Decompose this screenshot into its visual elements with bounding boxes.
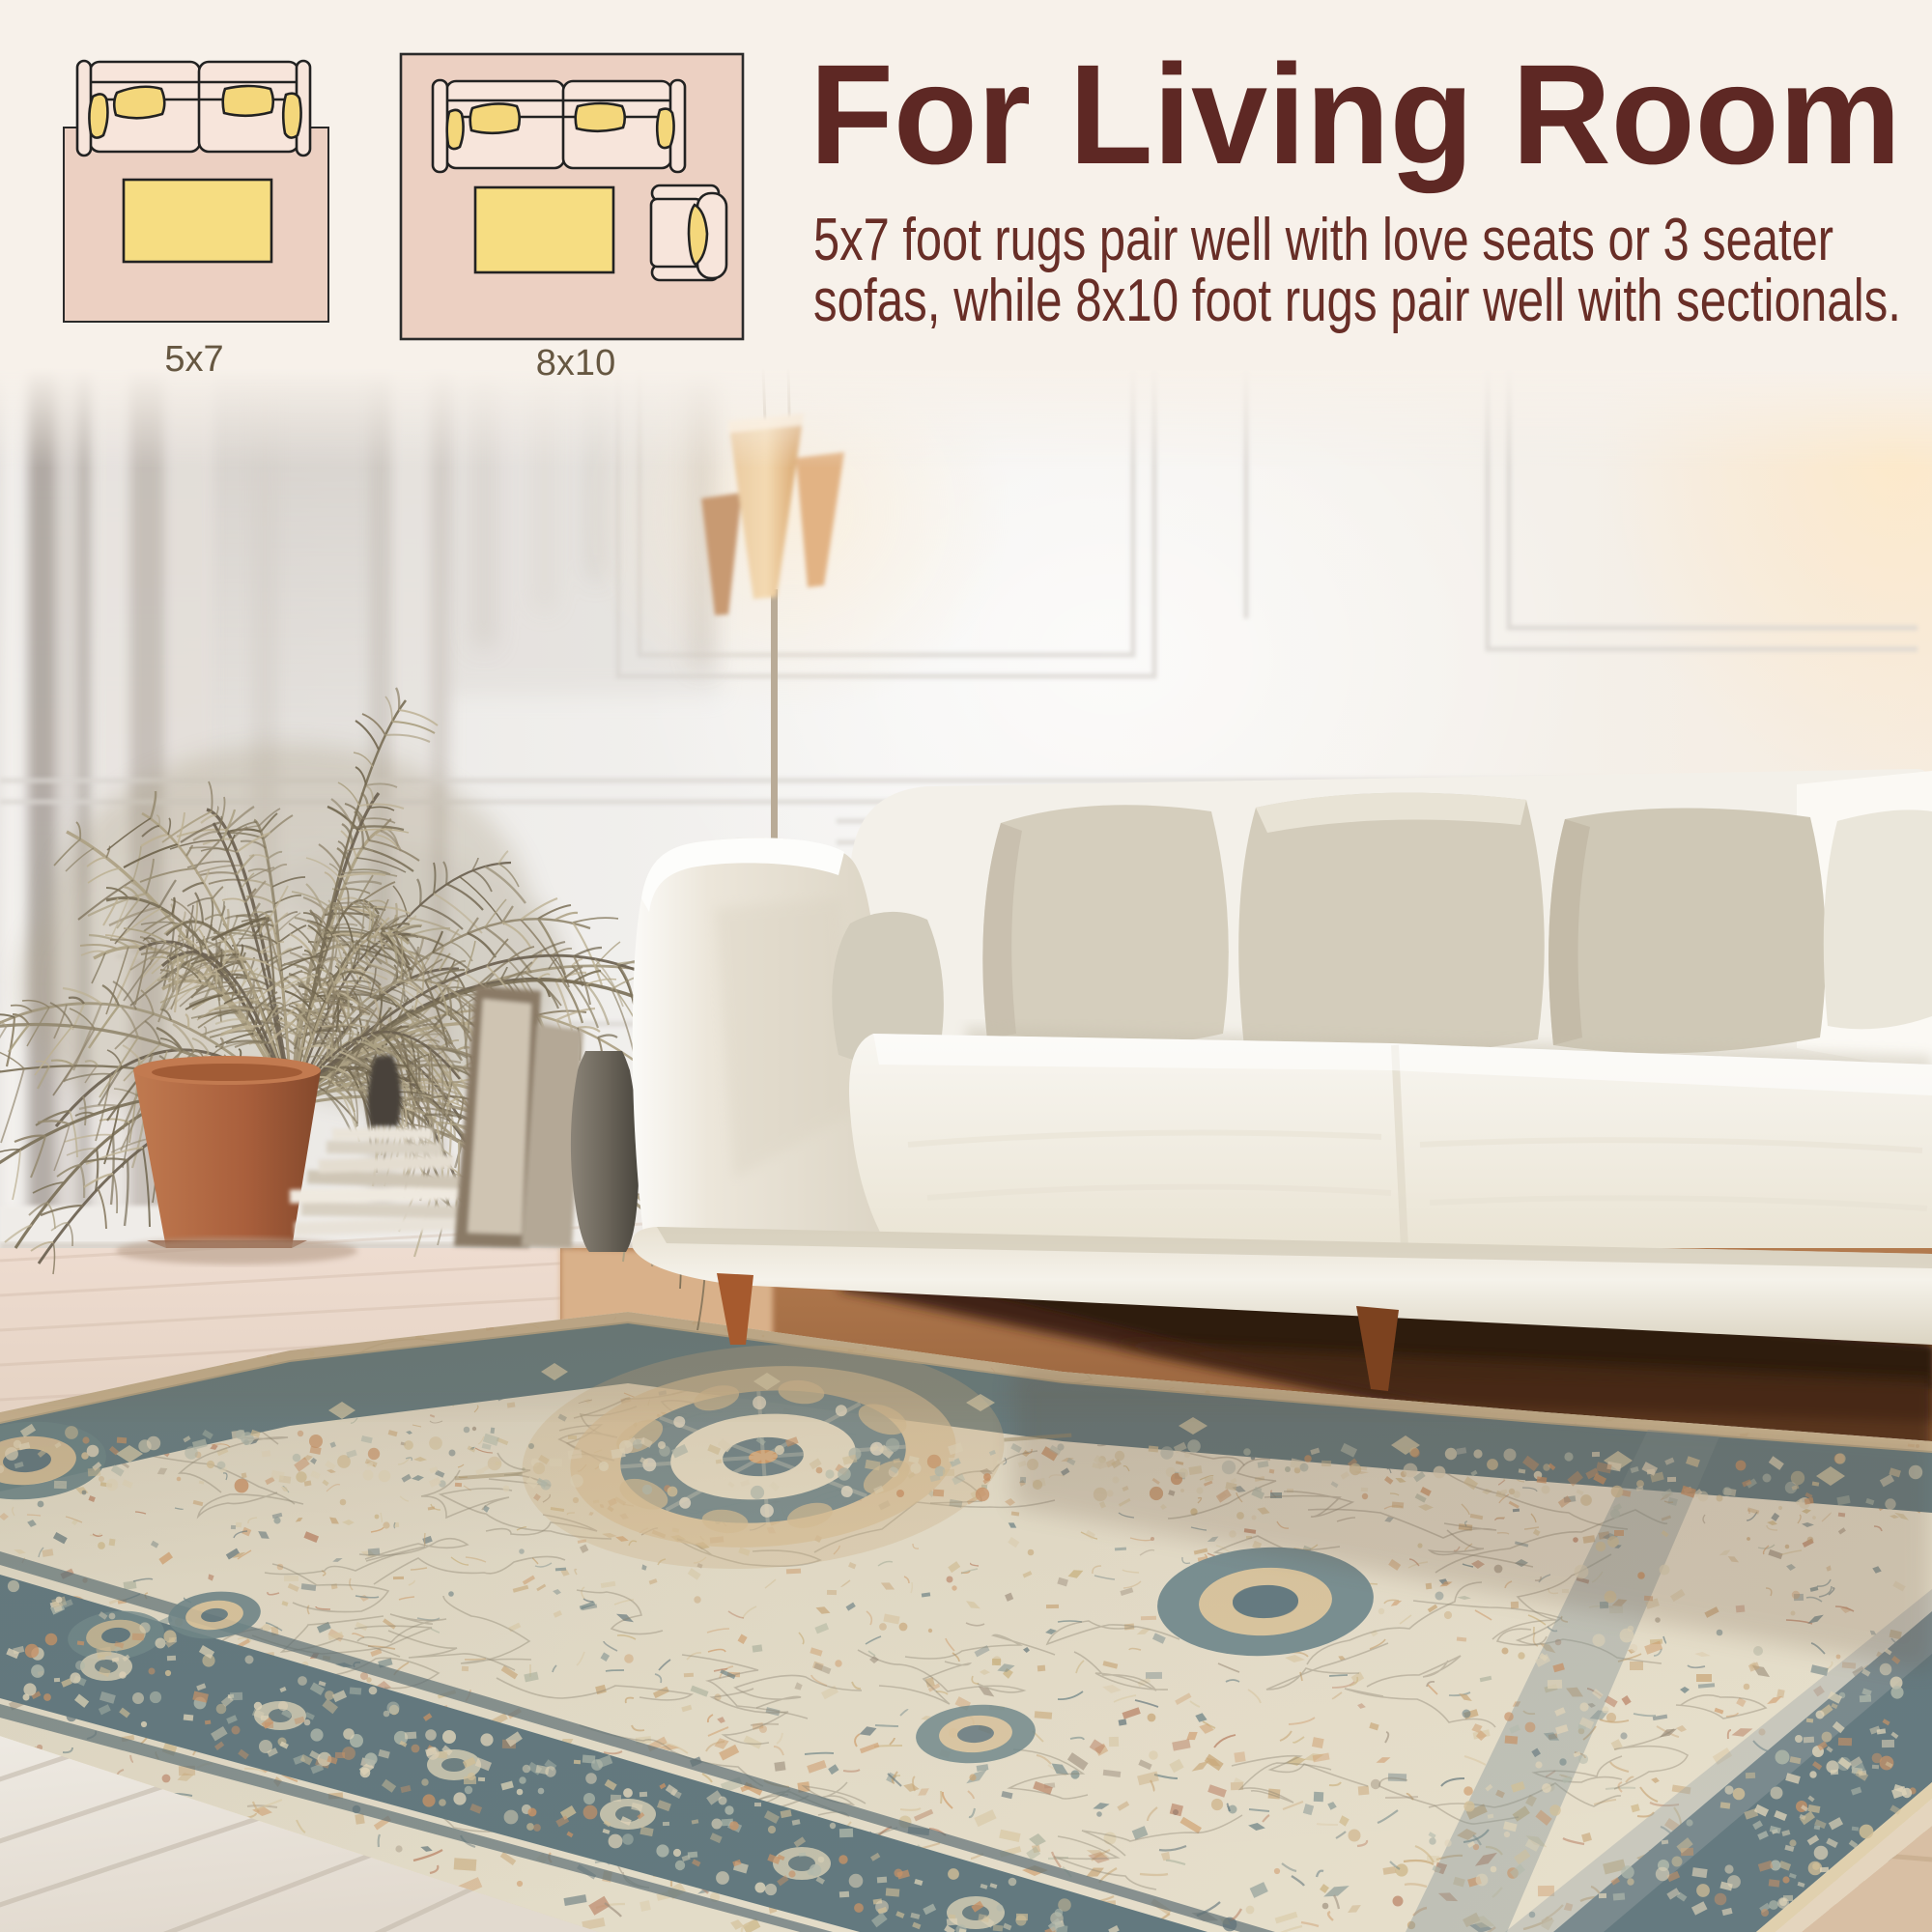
- svg-text:8x10: 8x10: [536, 343, 615, 384]
- svg-text:5x7 foot rugs pair well with l: 5x7 foot rugs pair well with love seats …: [813, 207, 1833, 273]
- svg-text:sofas, while 8x10 foot rugs pa: sofas, while 8x10 foot rugs pair well wi…: [813, 268, 1901, 334]
- svg-text:For Living Room: For Living Room: [810, 36, 1901, 194]
- svg-text:5x7: 5x7: [164, 339, 223, 380]
